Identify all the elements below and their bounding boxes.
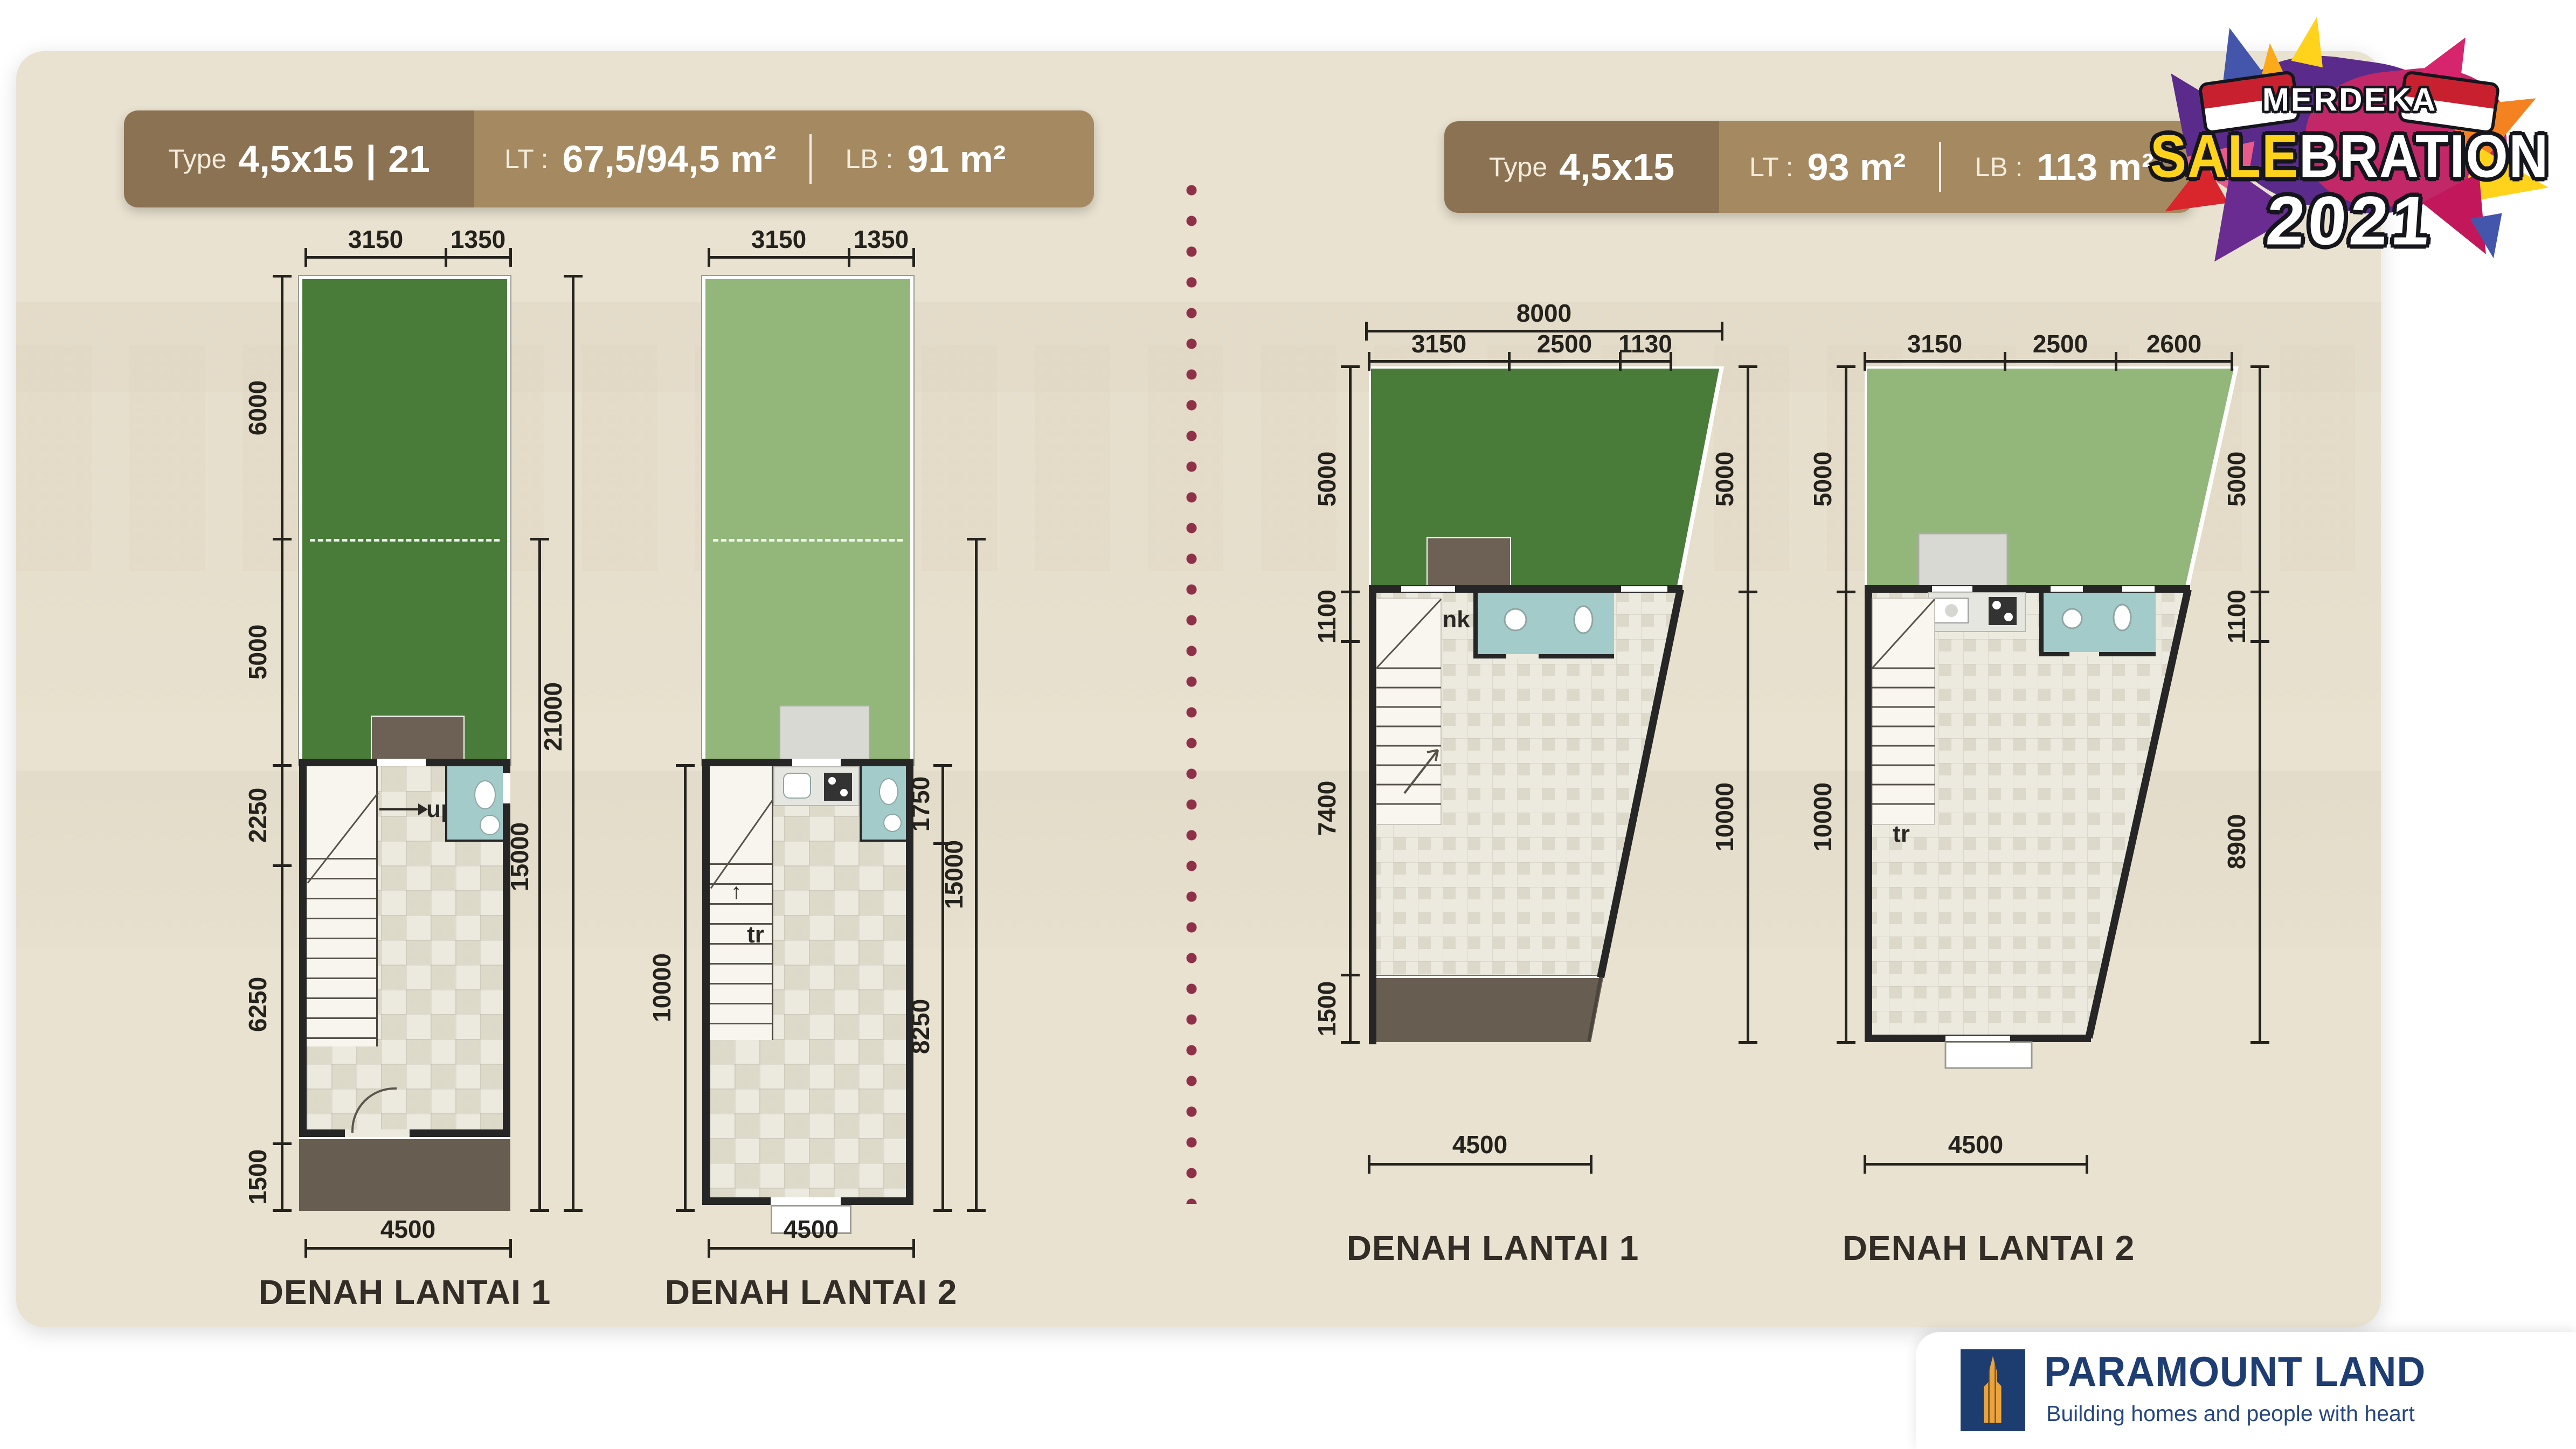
dim-line: [1747, 366, 1749, 1042]
dim-line: [1865, 360, 2232, 363]
dim-line: [1865, 1163, 2087, 1166]
dim-label: 5000: [243, 625, 272, 680]
dim-label: 1350: [854, 225, 909, 254]
plan-title: DENAH LANTAI 2: [665, 1272, 958, 1312]
floorplan-flyer: Type 4,5x15 | 21 LT : 67,5/94,5 m² LB : …: [0, 0, 2576, 1449]
dim-label: 2500: [2033, 329, 2088, 358]
plan-title: DENAH LANTAI 2: [1843, 1228, 2135, 1268]
type-size: 4,5x15: [238, 137, 354, 181]
dim-label: 4500: [1452, 1130, 1507, 1159]
dim-line: [1349, 366, 1352, 1042]
dim-label: 3150: [1411, 329, 1466, 358]
brand-name: PARAMOUNT LAND: [2044, 1347, 2426, 1396]
plan-b-roof-garden: [702, 276, 913, 765]
dim-label: 2500: [1537, 329, 1592, 358]
type-divider: |: [366, 137, 377, 181]
lt-label: LT :: [1749, 151, 1793, 183]
plan-b-door-gap: [771, 1197, 841, 1205]
plan-a-garden-door-gap: [377, 759, 426, 766]
left-type-header-light: LT : 67,5/94,5 m² LB : 91 m²: [474, 110, 1094, 207]
plan-a-wall-left: [299, 759, 307, 1143]
dim-label: 1500: [243, 1149, 272, 1204]
stair-direction-note: tr: [1893, 821, 1910, 848]
lt-value: 93 m²: [1808, 145, 1906, 189]
dim-line: [684, 765, 687, 1210]
type-size: 4,5x15: [1559, 145, 1674, 189]
dim-line: [709, 256, 913, 259]
dim-label: 1100: [1312, 590, 1341, 643]
dim-label: 8250: [906, 999, 935, 1054]
dim-label: 5000: [1808, 452, 1837, 507]
dim-label: 4500: [380, 1215, 435, 1244]
dim-label: 5000: [1710, 452, 1739, 507]
toilet-icon: [475, 781, 495, 808]
paramount-land-card: PARAMOUNT LAND Building homes and people…: [1916, 1332, 2576, 1449]
plan-a-bathroom: [445, 766, 503, 842]
brand-tagline: Building homes and people with heart: [2046, 1401, 2415, 1426]
dim-line: [281, 276, 283, 1210]
lt-label: LT :: [504, 143, 549, 175]
dim-label: 10000: [647, 953, 676, 1022]
dim-label: 1350: [451, 225, 505, 254]
dim-line: [1369, 1163, 1591, 1166]
dim-label: 3150: [751, 225, 806, 254]
sink-icon: [784, 774, 810, 798]
dim-label: 1500: [1312, 981, 1341, 1036]
up-arrow-icon: [379, 808, 419, 810]
lb-label: LB :: [1975, 151, 2023, 183]
dim-line: [709, 1247, 913, 1250]
dim-line: [306, 1247, 510, 1250]
dim-label: 3150: [1907, 329, 1962, 358]
dim-label: 15000: [505, 822, 534, 891]
type-label: Type: [1489, 151, 1547, 183]
dim-label: 8000: [1516, 299, 1571, 328]
type-label: Type: [168, 143, 226, 175]
toilet-icon: [880, 779, 897, 804]
right-type-header-light: LT : 93 m² LB : 113 m²: [1719, 121, 2193, 213]
dim-line: [941, 765, 944, 1210]
stove-icon: [824, 773, 852, 801]
dim-label: 1130: [1618, 329, 1672, 358]
right-type-header: Type 4,5x15 LT : 93 m² LB : 113 m²: [1444, 121, 2193, 213]
dim-label: 6000: [243, 380, 272, 435]
dim-label: 10000: [1710, 782, 1739, 851]
gold-tower-icon: [1970, 1355, 2016, 1426]
dim-line: [975, 539, 978, 1210]
dim-line: [1369, 360, 1671, 363]
plan-d-drawing: [1865, 366, 2239, 1072]
type-unit-number: 21: [388, 137, 430, 181]
dim-label: 8900: [2222, 814, 2251, 869]
plan-a-garden: [299, 276, 510, 765]
dim-label: 10000: [1808, 782, 1837, 851]
dim-label: 21000: [538, 682, 567, 751]
dim-label: 5000: [1312, 452, 1341, 507]
stair-treads: [307, 858, 376, 1046]
plan-a-garden-dashline: [310, 539, 500, 542]
dim-line: [306, 256, 510, 259]
dim-label: 1750: [906, 777, 935, 831]
plan-b-canopy: [779, 705, 870, 765]
separator-bar: [1939, 142, 1941, 192]
merdeka-salebration-badge: MERDEKA SALEBRATION 2021: [2134, 5, 2560, 259]
dim-label: 1100: [2222, 590, 2251, 643]
dim-label: 2600: [2146, 329, 2201, 358]
plan-b-wall-left: [702, 759, 710, 1205]
plan-a-bath-window: [503, 773, 510, 803]
right-type-header-dark: Type 4,5x15: [1444, 121, 1719, 213]
lb-value: 91 m²: [907, 137, 1006, 181]
plan-title: DENAH LANTAI 1: [259, 1272, 551, 1312]
left-type-header-dark: Type 4,5x15 | 21: [124, 110, 474, 207]
dim-label: 5000: [2222, 452, 2251, 507]
dim-label: 7400: [1312, 781, 1341, 836]
badge-merdeka-text: MERDEKA: [2262, 81, 2437, 119]
dim-label: 15000: [939, 840, 968, 909]
dotted-divider: [1186, 184, 1197, 1204]
plan-title: DENAH LANTAI 1: [1347, 1228, 1639, 1268]
plan-b-kitchen-counter: [773, 766, 860, 806]
dim-label: 2250: [243, 788, 272, 843]
plan-a-wall-right: [503, 759, 510, 1143]
dim-label: 4500: [1948, 1130, 2003, 1159]
dim-line: [2259, 366, 2261, 1042]
room-note: nk: [1442, 606, 1470, 633]
dim-line: [1845, 366, 1847, 1042]
stair-up-arrow: ↑: [731, 880, 742, 904]
stair-direction-note: tr: [747, 921, 764, 948]
left-type-header: Type 4,5x15 | 21 LT : 67,5/94,5 m² LB : …: [124, 110, 1094, 207]
plan-a-stairs: [307, 766, 378, 1046]
plan-b-bathroom: [860, 766, 906, 842]
plan-c-drawing: [1369, 366, 1725, 1067]
dim-label: 6250: [243, 977, 272, 1032]
dim-line: [538, 539, 541, 1210]
separator-bar: [809, 134, 812, 184]
plan-a-porch: [299, 1137, 510, 1211]
plan-b-garden-dashline: [713, 539, 903, 542]
lb-label: LB :: [845, 143, 893, 175]
sink-icon: [481, 816, 499, 834]
badge-year-text: 2021: [2263, 182, 2435, 261]
dim-line: [572, 276, 574, 1210]
badge-salebration-text: SALEBRATION: [2150, 122, 2549, 191]
dim-label: 3150: [348, 225, 403, 254]
dim-label: 4500: [784, 1215, 839, 1244]
plan-b-window-gap: [792, 759, 841, 766]
plan-b-stairs: [710, 766, 773, 1040]
sink-icon: [884, 815, 901, 831]
paramount-logo-icon: [1961, 1349, 2025, 1431]
lt-value: 67,5/94,5 m²: [563, 137, 777, 181]
